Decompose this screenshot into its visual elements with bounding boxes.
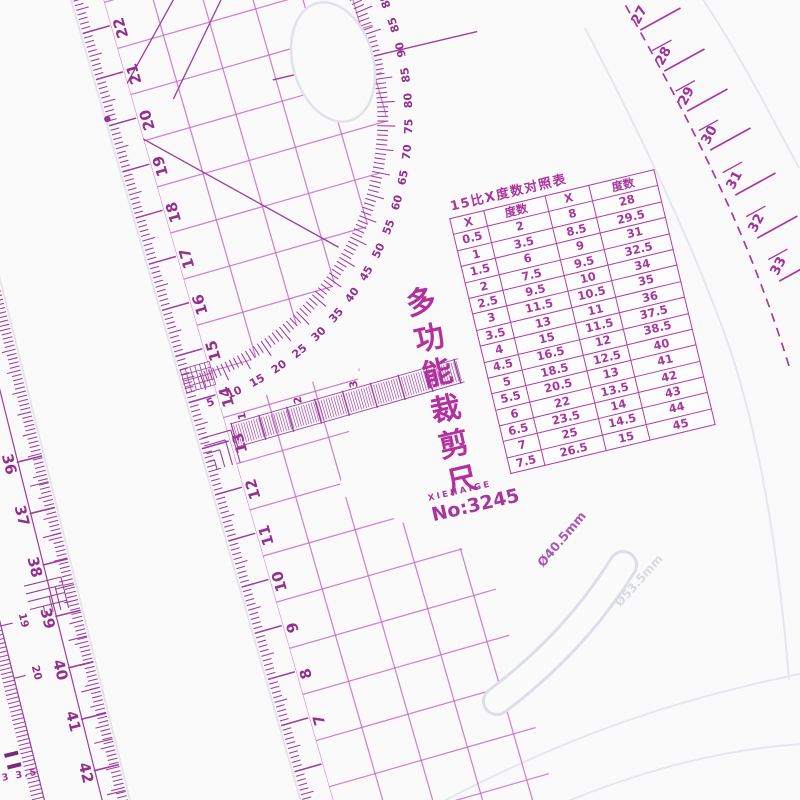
degree-number: 80 [401, 92, 415, 108]
cm-number: 19 [149, 154, 172, 179]
left-ruler-number: 39 [36, 606, 59, 631]
cm-number: 16 [189, 292, 212, 317]
ruler-photo: 363738394041421920 222120191817161514131… [0, 0, 800, 800]
thumb-hole [278, 0, 389, 132]
degree-number: 20 [269, 357, 289, 377]
cm-number: 17 [175, 246, 198, 271]
curve-ruler-number: 30 [698, 123, 721, 147]
degree-number: 60 [389, 193, 406, 212]
left-ruler-number: 41 [62, 709, 85, 734]
left-ruler-inner-number: 19 [16, 612, 31, 629]
degree-number: 80 [376, 0, 394, 10]
degree-number: 40 [342, 285, 362, 305]
cm-number: 8 [296, 666, 316, 681]
left-ruler-number: 36 [0, 452, 20, 477]
cm-number: 21 [122, 61, 145, 86]
left-ruler-number: 37 [11, 503, 34, 528]
curve-ruler-number: 28 [652, 44, 675, 68]
degree-number: 15 [247, 371, 267, 390]
degree-number: 70 [400, 143, 415, 160]
band-number: 2 [292, 395, 305, 404]
degree-number: 45 [357, 264, 376, 284]
curve-ruler-number: 27 [628, 3, 651, 27]
cm-number: 10 [268, 569, 291, 594]
degree-number: 85 [398, 66, 413, 83]
cm-number: 9 [283, 620, 303, 635]
degree-number: 55 [380, 218, 398, 237]
cm-number: 15 [202, 338, 225, 363]
cm-number: 12 [241, 477, 264, 502]
left-ruler-inner-number: 20 [29, 664, 44, 681]
cm-number: 22 [109, 15, 132, 40]
degree-number: 75 [402, 119, 415, 135]
left-ruler-number: 40 [49, 658, 72, 683]
left-ruler-number: 38 [23, 555, 46, 580]
cm-number: 20 [136, 108, 159, 133]
left-ruler-number: 42 [75, 760, 98, 785]
cm-number: 7 [309, 712, 329, 727]
degree-number: 50 [369, 241, 388, 261]
band-number: 3 [347, 379, 360, 388]
degree-number: 5 [205, 395, 217, 410]
degree-number: 85 [385, 16, 402, 35]
degree-number: 25 [289, 341, 309, 361]
cm-number: 18 [162, 200, 185, 225]
band-number: 1 [236, 411, 249, 420]
degree-number: 30 [309, 324, 329, 344]
degree-number: 65 [395, 169, 411, 187]
degree-number: 35 [326, 305, 346, 325]
cm-number: 11 [255, 523, 278, 548]
curve-ruler-number: 31 [723, 168, 746, 192]
left-ruler: 363738394041421920 [0, 263, 138, 800]
curved-slot [497, 565, 623, 701]
